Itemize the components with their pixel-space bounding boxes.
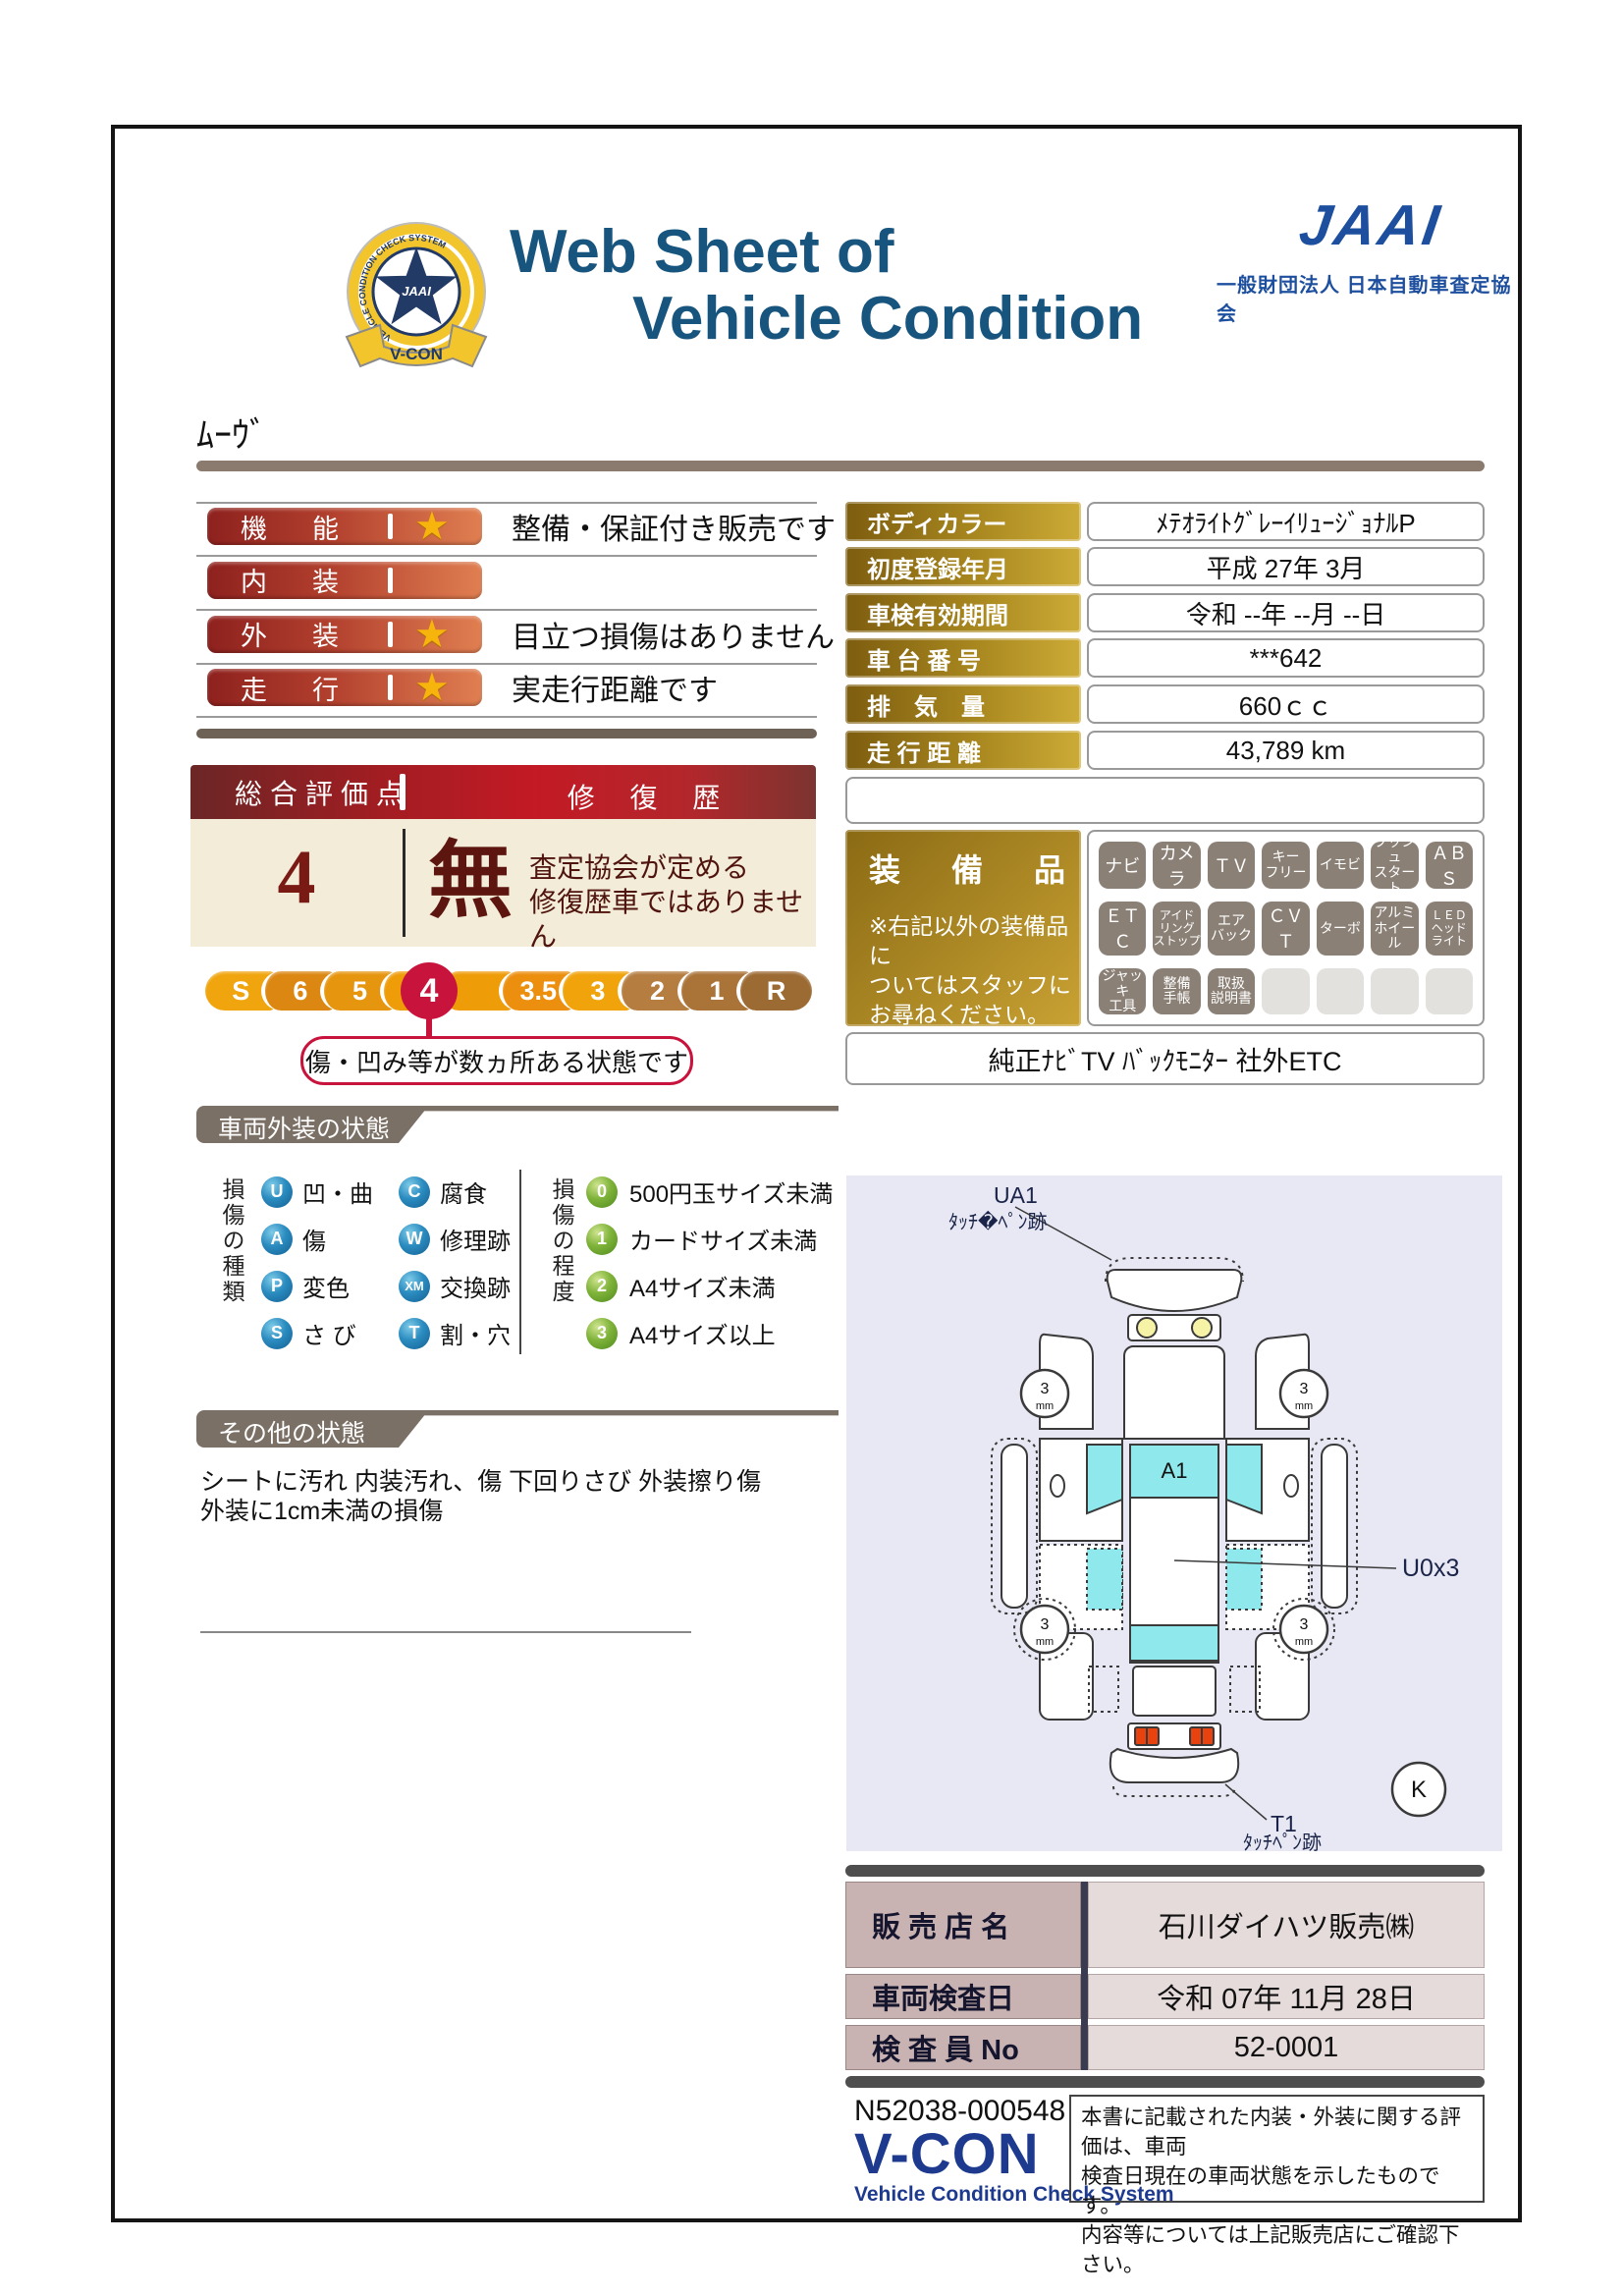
tread-unit: mm xyxy=(1295,1400,1313,1412)
badge-star-text: JAAI xyxy=(402,284,431,299)
equipment-badge-empty xyxy=(1371,968,1418,1014)
sheet-title-line1: Web Sheet of xyxy=(510,222,894,283)
info-value: ***642 xyxy=(1087,638,1485,678)
section-header-exterior: 車両外装の状態 xyxy=(196,1106,839,1143)
rating-separator xyxy=(196,663,817,665)
equipment-badge: ＬＥＤ ヘッド ライト xyxy=(1426,902,1473,956)
section-header-other: その他の状態 xyxy=(196,1410,839,1448)
rating-label: 外装 xyxy=(241,615,388,653)
damage-name: 修理跡 xyxy=(440,1222,511,1256)
info-label: 車検有効期間 xyxy=(845,593,1081,632)
equipment-badge-empty xyxy=(1426,968,1473,1014)
equipment-badge: ＴＶ xyxy=(1208,842,1255,889)
rating-tick xyxy=(388,568,393,593)
equipment-badge: ナビ xyxy=(1099,842,1146,889)
rating-separator xyxy=(196,716,817,718)
mark-t1-note: ﾀｯﾁﾍﾟﾝ跡 xyxy=(1243,1831,1322,1851)
car-diagram: 3 mm 3 mm 3 mm 3 mm UA1 ﾀｯﾁ�ﾍﾟﾝ跡 A1 U0x3… xyxy=(846,1175,1502,1851)
mark-ua1: UA1 xyxy=(994,1182,1038,1208)
tread-unit: mm xyxy=(1036,1636,1054,1648)
equipment-badge: ＣＶＴ xyxy=(1262,902,1309,956)
equipment-badge: 取扱 説明書 xyxy=(1208,968,1255,1014)
damage-degree-label: 損傷の程度 xyxy=(545,1177,578,1305)
tread-value: 3 xyxy=(1300,1381,1309,1397)
damage-type-row: S さ び T 割・穴 xyxy=(261,1316,511,1350)
equipment-note: ※右記以外の装備品に ついてはスタッフに お尋ねください。 xyxy=(869,912,1081,1030)
scale-segment: R xyxy=(736,971,812,1011)
info-label: 走 行 距 離 xyxy=(845,731,1081,770)
damage-code: P xyxy=(261,1271,293,1302)
damage-type-row: U 凹・曲 C 腐食 xyxy=(261,1175,487,1209)
damage-code: XM xyxy=(399,1271,430,1302)
damage-name: 割・穴 xyxy=(440,1316,511,1350)
damage-name: 凹・曲 xyxy=(302,1175,389,1209)
dealer-value: 令和 07年 11月 28日 xyxy=(1088,1974,1485,2019)
info-label: ボディカラー xyxy=(845,502,1081,541)
degree-name: カードサイズ未満 xyxy=(629,1222,817,1256)
rating-bar: 外装 ★ xyxy=(207,616,482,653)
badge-row-2: ＥＴＣ アイド リング ストップ エア バック ＣＶＴ ターボ アルミ ホイール… xyxy=(1099,902,1473,956)
rating-row-function: 機能 ★ 整備・保証付き販売です xyxy=(207,508,836,545)
rating-separator xyxy=(196,609,817,611)
jaai-logo: JAAI xyxy=(1296,197,1445,254)
equipment-badge: ジャッキ 工具 xyxy=(1099,968,1146,1014)
rating-label: 内装 xyxy=(241,561,388,599)
dealer-row: 販 売 店 名 石川ダイハツ販売㈱ xyxy=(845,1882,1485,1968)
info-label: 初度登録年月 xyxy=(845,547,1081,586)
dealer-row: 検 査 員 No 52-0001 xyxy=(845,2025,1485,2070)
rating-comment: 整備・保証付き販売です xyxy=(512,505,836,548)
damage-name: 変色 xyxy=(302,1269,389,1303)
star-icon: ★ xyxy=(414,507,450,546)
disclaimer-text: 本書に記載された内装・外装に関する評価は、車両 検査日現在の車両状態を示したもの… xyxy=(1069,2095,1485,2203)
star-icon: ★ xyxy=(414,615,450,654)
other-condition-line2: 外装に1cm未満の損傷 xyxy=(200,1492,443,1527)
dealer-table-top-bar xyxy=(845,1865,1485,1877)
damage-diagram-panel: 3 mm 3 mm 3 mm 3 mm UA1 ﾀｯﾁ�ﾍﾟﾝ跡 A1 U0x3… xyxy=(846,1175,1502,1851)
equipment-badge: エア バック xyxy=(1208,902,1255,956)
badge-ribbon-text: V-CON xyxy=(390,345,443,363)
degree-code: 2 xyxy=(586,1271,618,1302)
info-value: 令和 --年 --月 --日 xyxy=(1087,593,1485,632)
info-label: 排 気 量 xyxy=(845,684,1081,724)
header-tick xyxy=(400,774,406,810)
damage-degree-row: 3 A4サイズ以上 xyxy=(586,1316,776,1350)
tread-unit: mm xyxy=(1036,1400,1054,1412)
damage-name: 交換跡 xyxy=(440,1269,511,1303)
vehicle-name: ﾑｰｳﾞ xyxy=(196,407,267,458)
dealer-value: 石川ダイハツ販売㈱ xyxy=(1088,1882,1485,1968)
legend-divider xyxy=(519,1170,521,1354)
vcon-badge-icon: VEHICLE CONDITION CHECK SYSTEM JAAI V-CO… xyxy=(333,219,500,406)
info-empty-box xyxy=(845,777,1485,824)
damage-degree-row: 1 カードサイズ未満 xyxy=(586,1222,817,1256)
degree-name: A4サイズ以上 xyxy=(629,1316,776,1350)
rating-bar: 機能 ★ xyxy=(207,508,482,545)
dealer-table-divider xyxy=(1081,1882,1088,2070)
equipment-footer: 純正ﾅﾋﾞTV ﾊﾞｯｸﾓﾆﾀｰ 社外ETC xyxy=(845,1032,1485,1085)
damage-type-label: 損傷の種類 xyxy=(215,1177,248,1305)
rating-tick xyxy=(388,675,393,700)
rating-comment: 目立つ損傷はありません xyxy=(512,613,835,656)
vehicle-condition-sheet: VEHICLE CONDITION CHECK SYSTEM JAAI V-CO… xyxy=(111,125,1522,2222)
info-value: 平成 27年 3月 xyxy=(1087,547,1485,586)
equipment-badge-empty xyxy=(1317,968,1364,1014)
equipment-badge: 整備 手帳 xyxy=(1153,968,1200,1014)
degree-code: 0 xyxy=(586,1176,618,1208)
dealer-label: 販 売 店 名 xyxy=(845,1882,1081,1968)
dealer-table: 販 売 店 名 石川ダイハツ販売㈱ 車両検査日 令和 07年 11月 28日 検… xyxy=(845,1882,1485,2070)
degree-code: 3 xyxy=(586,1318,618,1349)
star-icon: ★ xyxy=(414,668,450,707)
rating-row-mileage: 走行 ★ 実走行距離です xyxy=(207,670,718,705)
equipment-label: 装 備 品 xyxy=(869,846,1081,891)
repair-history-label: 修 復 歴 xyxy=(485,777,816,816)
notes-underline xyxy=(200,1631,691,1633)
mark-u0x3: U0x3 xyxy=(1402,1555,1459,1582)
divider-bar xyxy=(196,461,1485,471)
jaai-org-name: 一般財団法人 日本自動車査定協会 xyxy=(1217,269,1518,326)
equipment-badge: ターボ xyxy=(1317,902,1364,956)
info-label: 車 台 番 号 xyxy=(845,638,1081,678)
rating-row-interior: 内装 xyxy=(207,562,482,598)
equipment-badge: ＥＴＣ xyxy=(1099,902,1146,956)
tread-value: 3 xyxy=(1300,1616,1309,1633)
dealer-label: 車両検査日 xyxy=(845,1974,1081,2019)
equipment-badge: アイド リング ストップ xyxy=(1153,902,1200,956)
damage-name: 傷 xyxy=(302,1222,389,1256)
mark-ua1-note: ﾀｯﾁ�ﾍﾟﾝ跡 xyxy=(948,1210,1048,1233)
damage-code: C xyxy=(399,1176,430,1208)
rating-tick xyxy=(388,514,393,539)
rating-bar: 内装 xyxy=(207,562,482,599)
rating-separator xyxy=(196,502,817,504)
damage-degree-row: 0 500円玉サイズ未満 xyxy=(586,1175,833,1209)
mark-a1: A1 xyxy=(1162,1458,1188,1483)
equipment-badge: プッシュ スタート xyxy=(1371,842,1418,889)
selected-grade-marker: 4 xyxy=(401,962,458,1019)
degree-name: 500円玉サイズ未満 xyxy=(629,1175,833,1209)
info-value: ﾒﾃｵﾗｲﾄｸﾞﾚｰｲﾘｭｰｼﾞｮﾅﾙP xyxy=(1087,502,1485,541)
rating-bar: 走行 ★ xyxy=(207,669,482,706)
rating-label: 走行 xyxy=(241,669,388,707)
info-value: 660ｃｃ xyxy=(1087,684,1485,724)
degree-code: 1 xyxy=(586,1224,618,1255)
damage-degree-row: 2 A4サイズ未満 xyxy=(586,1269,776,1303)
damage-name: さ び xyxy=(302,1316,389,1350)
info-value: 43,789 km xyxy=(1087,731,1485,770)
damage-type-row: P 変色 XM 交換跡 xyxy=(261,1269,511,1303)
repair-history-value: 無 xyxy=(428,839,513,923)
mark-k: K xyxy=(1411,1777,1427,1803)
body-divider xyxy=(403,829,406,937)
equipment-badges-panel: ナビ カメラ ＴＶ キー フリー イモビ プッシュ スタート ＡＢＳ ＥＴＣ ア… xyxy=(1087,830,1485,1026)
rating-label: 機能 xyxy=(241,508,388,546)
tread-value: 3 xyxy=(1041,1616,1050,1633)
rating-tick xyxy=(388,622,393,647)
badge-row-3: ジャッキ 工具 整備 手帳 取扱 説明書 xyxy=(1099,968,1473,1014)
dealer-value: 52-0001 xyxy=(1088,2025,1485,2070)
divider-bar-2 xyxy=(196,729,817,738)
overall-header: 総合評価点 修 復 歴 xyxy=(190,765,816,819)
overall-score-value: 4 xyxy=(190,833,403,921)
equipment-badge: イモビ xyxy=(1317,842,1364,889)
damage-type-row: A 傷 W 修理跡 xyxy=(261,1222,511,1256)
damage-code: W xyxy=(399,1224,430,1255)
equipment-panel: 装 備 品 ※右記以外の装備品に ついてはスタッフに お尋ねください。 xyxy=(845,830,1081,1026)
vcon-logotype: V-CON xyxy=(854,2126,1040,2183)
rating-row-exterior: 外装 ★ 目立つ損傷はありません xyxy=(207,616,835,652)
sheet-canvas: VEHICLE CONDITION CHECK SYSTEM JAAI V-CO… xyxy=(0,0,1623,2296)
overall-score-label: 総合評価点 xyxy=(235,773,411,812)
damage-code: S xyxy=(261,1318,293,1349)
grade-callout: 傷・凹み等が数ヵ所ある状態です xyxy=(300,1036,693,1085)
sheet-title-line2: Vehicle Condition xyxy=(632,289,1143,350)
tread-value: 3 xyxy=(1041,1381,1050,1397)
equipment-badge: キー フリー xyxy=(1262,842,1309,889)
degree-name: A4サイズ未満 xyxy=(629,1269,776,1303)
damage-name: 腐食 xyxy=(440,1175,487,1209)
repair-history-note: 査定協会が定める 修復歴車ではありません xyxy=(529,850,816,954)
dealer-table-bottom-bar xyxy=(845,2076,1485,2088)
equipment-badge: カメラ xyxy=(1153,842,1200,889)
dealer-row: 車両検査日 令和 07年 11月 28日 xyxy=(845,1974,1485,2019)
grade-scale: S 6 5 4.5 3.5 3 2 1 R xyxy=(205,971,812,1011)
rating-comment: 実走行距離です xyxy=(512,666,718,709)
dealer-label: 検 査 員 No xyxy=(845,2025,1081,2070)
damage-code: U xyxy=(261,1176,293,1208)
equipment-badge: ＡＢＳ xyxy=(1426,842,1473,889)
tread-unit: mm xyxy=(1295,1636,1313,1648)
badge-row-1: ナビ カメラ ＴＶ キー フリー イモビ プッシュ スタート ＡＢＳ xyxy=(1099,842,1473,889)
equipment-badge-empty xyxy=(1262,968,1309,1014)
rating-separator xyxy=(196,555,817,557)
damage-code: T xyxy=(399,1318,430,1349)
damage-code: A xyxy=(261,1224,293,1255)
overall-body: 4 無 査定協会が定める 修復歴車ではありません xyxy=(190,819,816,947)
equipment-badge: アルミ ホイール xyxy=(1371,902,1418,956)
